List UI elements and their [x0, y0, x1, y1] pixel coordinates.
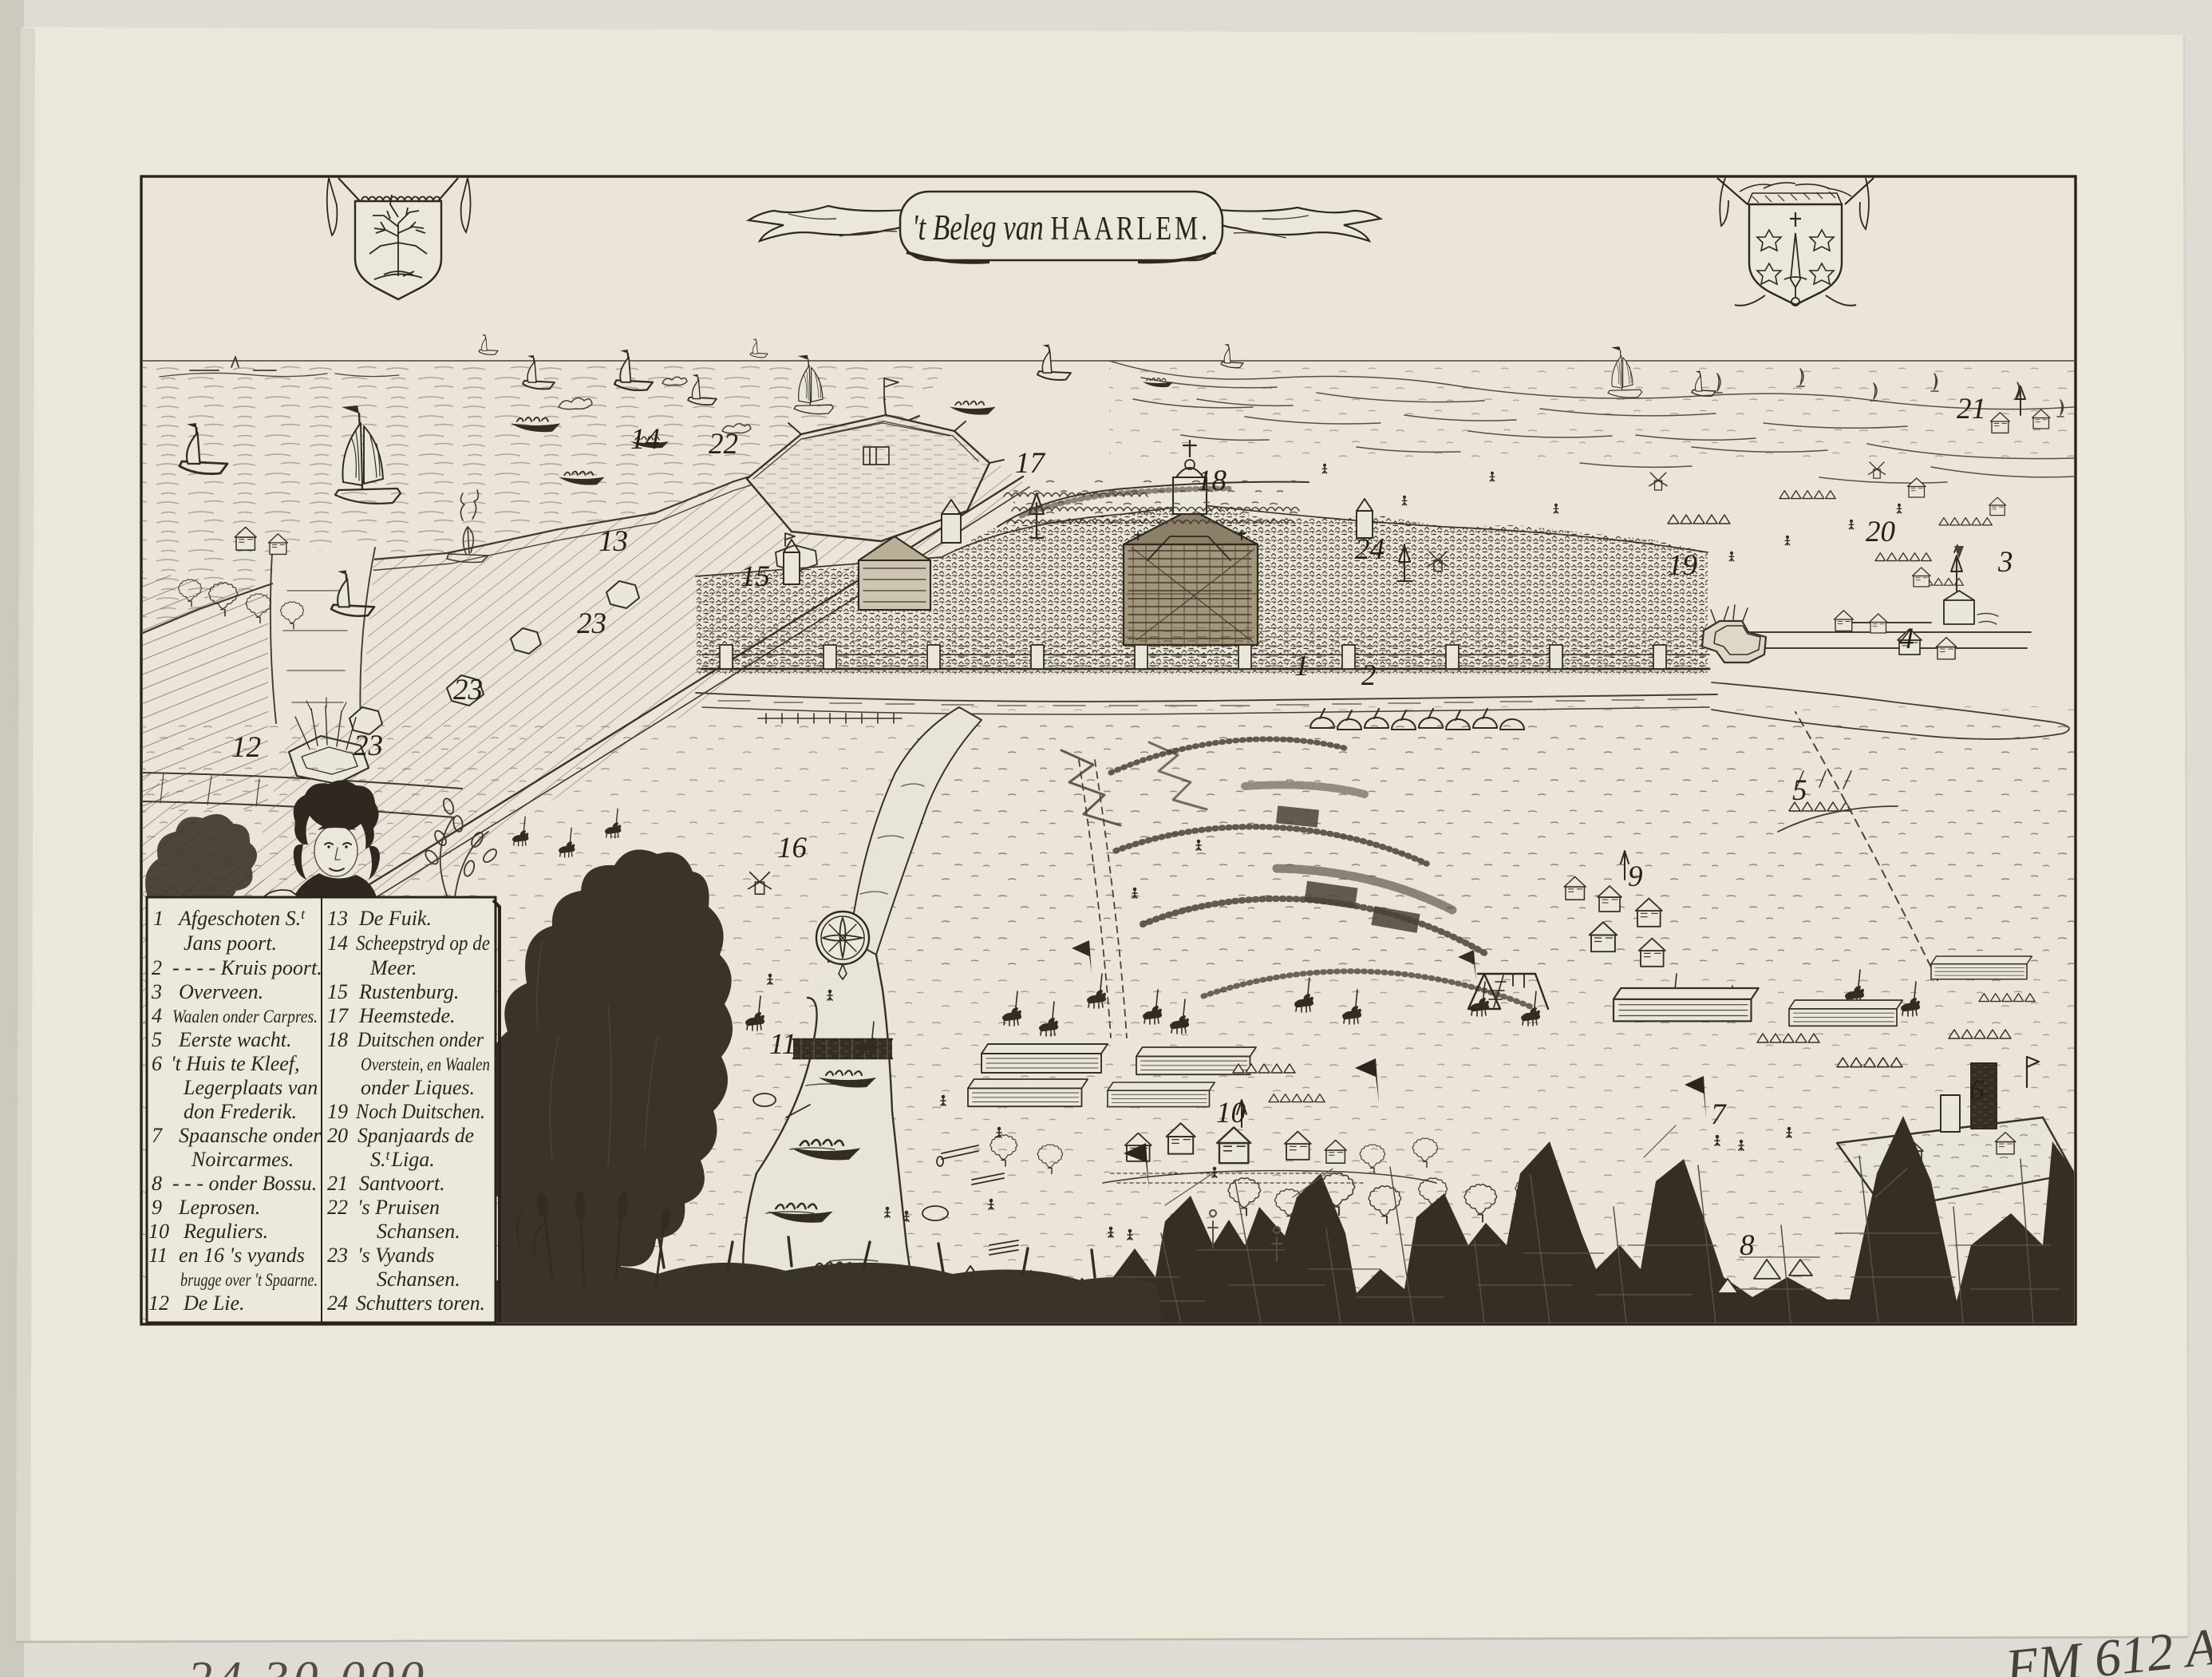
- svg-text:17: 17: [1015, 447, 1046, 480]
- svg-text:11: 11: [769, 1028, 796, 1061]
- svg-text:Overveen.: Overveen.: [179, 980, 263, 1003]
- svg-text:8: 8: [1740, 1229, 1755, 1262]
- svg-text:24: 24: [1355, 533, 1384, 566]
- svg-text:6: 6: [152, 1052, 162, 1075]
- svg-text:12: 12: [148, 1291, 169, 1315]
- svg-text:Spaansche onder: Spaansche onder: [179, 1124, 322, 1147]
- svg-text:15: 15: [327, 980, 348, 1003]
- svg-text:'t Huis te Kleef,: 't Huis te Kleef,: [171, 1052, 300, 1075]
- svg-text:16: 16: [777, 832, 808, 864]
- svg-text:Jans poort.: Jans poort.: [184, 931, 277, 955]
- svg-text:'t Beleg van HAARLEM.: 't Beleg van HAARLEM.: [912, 208, 1211, 247]
- svg-text:'s Vyands: 's Vyands: [357, 1244, 434, 1267]
- svg-text:12: 12: [231, 731, 261, 764]
- svg-text:- - - onder Bossu.: - - - onder Bossu.: [172, 1172, 317, 1195]
- svg-text:21: 21: [1957, 393, 1986, 425]
- svg-text:7: 7: [1711, 1098, 1727, 1131]
- svg-text:Reguliers.: Reguliers.: [183, 1220, 268, 1243]
- svg-text:23: 23: [327, 1244, 348, 1267]
- svg-text:brugge over 't Spaarne.: brugge over 't Spaarne.: [180, 1270, 318, 1290]
- svg-text:2: 2: [1361, 659, 1377, 692]
- svg-text:6: 6: [1969, 1074, 1985, 1107]
- svg-text:9: 9: [1628, 860, 1643, 893]
- svg-text:23: 23: [577, 607, 606, 640]
- svg-text:15: 15: [741, 560, 770, 593]
- svg-text:4: 4: [152, 1004, 162, 1027]
- svg-text:9: 9: [152, 1196, 162, 1219]
- svg-text:Santvoort.: Santvoort.: [359, 1172, 445, 1195]
- svg-text:24 30 000: 24 30 000: [188, 1652, 429, 1677]
- svg-text:3: 3: [151, 980, 162, 1003]
- svg-text:23: 23: [453, 674, 483, 706]
- svg-text:4: 4: [1899, 623, 1914, 655]
- svg-text:10: 10: [1216, 1097, 1246, 1129]
- svg-text:Scheepstryd op de: Scheepstryd op de: [356, 931, 490, 955]
- svg-text:Spanjaards de: Spanjaards de: [357, 1124, 474, 1147]
- svg-text:Leprosen.: Leprosen.: [178, 1196, 260, 1219]
- svg-text:onder Liques.: onder Liques.: [361, 1076, 475, 1099]
- svg-text:5: 5: [1792, 774, 1807, 807]
- svg-text:14: 14: [327, 931, 348, 955]
- svg-text:en 16 's vyands: en 16 's vyands: [179, 1244, 305, 1267]
- svg-text:1: 1: [1294, 650, 1309, 682]
- svg-text:- - - - Kruis poort.: - - - - Kruis poort.: [172, 956, 322, 979]
- svg-text:8: 8: [152, 1172, 162, 1195]
- svg-text:Rustenburg.: Rustenburg.: [358, 980, 459, 1003]
- svg-text:Heemstede.: Heemstede.: [358, 1004, 456, 1027]
- svg-text:21: 21: [327, 1172, 348, 1195]
- svg-text:'s Pruisen: 's Pruisen: [357, 1196, 440, 1219]
- svg-text:5: 5: [152, 1028, 162, 1051]
- svg-text:Afgeschoten S.t: Afgeschoten S.t: [177, 906, 306, 930]
- svg-text:24: 24: [327, 1291, 348, 1315]
- svg-text:Legerplaats van: Legerplaats van: [183, 1076, 318, 1099]
- svg-text:De Lie.: De Lie.: [183, 1291, 245, 1315]
- svg-text:10: 10: [148, 1220, 169, 1243]
- svg-text:20: 20: [1866, 516, 1896, 548]
- svg-text:11: 11: [148, 1244, 168, 1267]
- svg-text:De Fuik.: De Fuik.: [358, 907, 432, 930]
- svg-text:Schutters toren.: Schutters toren.: [356, 1291, 485, 1315]
- svg-text:17: 17: [327, 1004, 349, 1027]
- svg-text:Noch Duitschen.: Noch Duitschen.: [355, 1100, 485, 1123]
- svg-text:22: 22: [709, 428, 738, 461]
- svg-text:Waalen onder Carpres.: Waalen onder Carpres.: [172, 1007, 318, 1026]
- svg-text:3: 3: [1997, 546, 2013, 579]
- svg-text:Overstein, en Waalen: Overstein, en Waalen: [361, 1054, 490, 1074]
- svg-text:Schansen.: Schansen.: [377, 1220, 460, 1243]
- svg-text:Duitschen onder: Duitschen onder: [357, 1028, 484, 1051]
- svg-text:19: 19: [1668, 549, 1697, 582]
- svg-text:2: 2: [152, 956, 162, 979]
- svg-text:7: 7: [152, 1124, 163, 1147]
- svg-text:S.tLiga.: S.tLiga.: [370, 1147, 435, 1171]
- svg-text:don Frederik.: don Frederik.: [184, 1100, 297, 1123]
- svg-text:22: 22: [327, 1196, 348, 1219]
- svg-text:18: 18: [327, 1028, 348, 1051]
- svg-text:Eerste wacht.: Eerste wacht.: [178, 1028, 292, 1051]
- svg-text:Meer.: Meer.: [369, 956, 417, 979]
- svg-text:20: 20: [327, 1124, 348, 1147]
- svg-text:18: 18: [1197, 465, 1227, 497]
- svg-text:13: 13: [327, 907, 348, 930]
- svg-text:Noircarmes.: Noircarmes.: [191, 1148, 294, 1171]
- svg-text:1: 1: [153, 907, 164, 930]
- svg-text:19: 19: [327, 1100, 348, 1123]
- svg-text:14: 14: [630, 423, 660, 456]
- svg-text:13: 13: [598, 525, 628, 558]
- svg-text:23: 23: [354, 730, 383, 762]
- svg-text:Schansen.: Schansen.: [377, 1268, 460, 1291]
